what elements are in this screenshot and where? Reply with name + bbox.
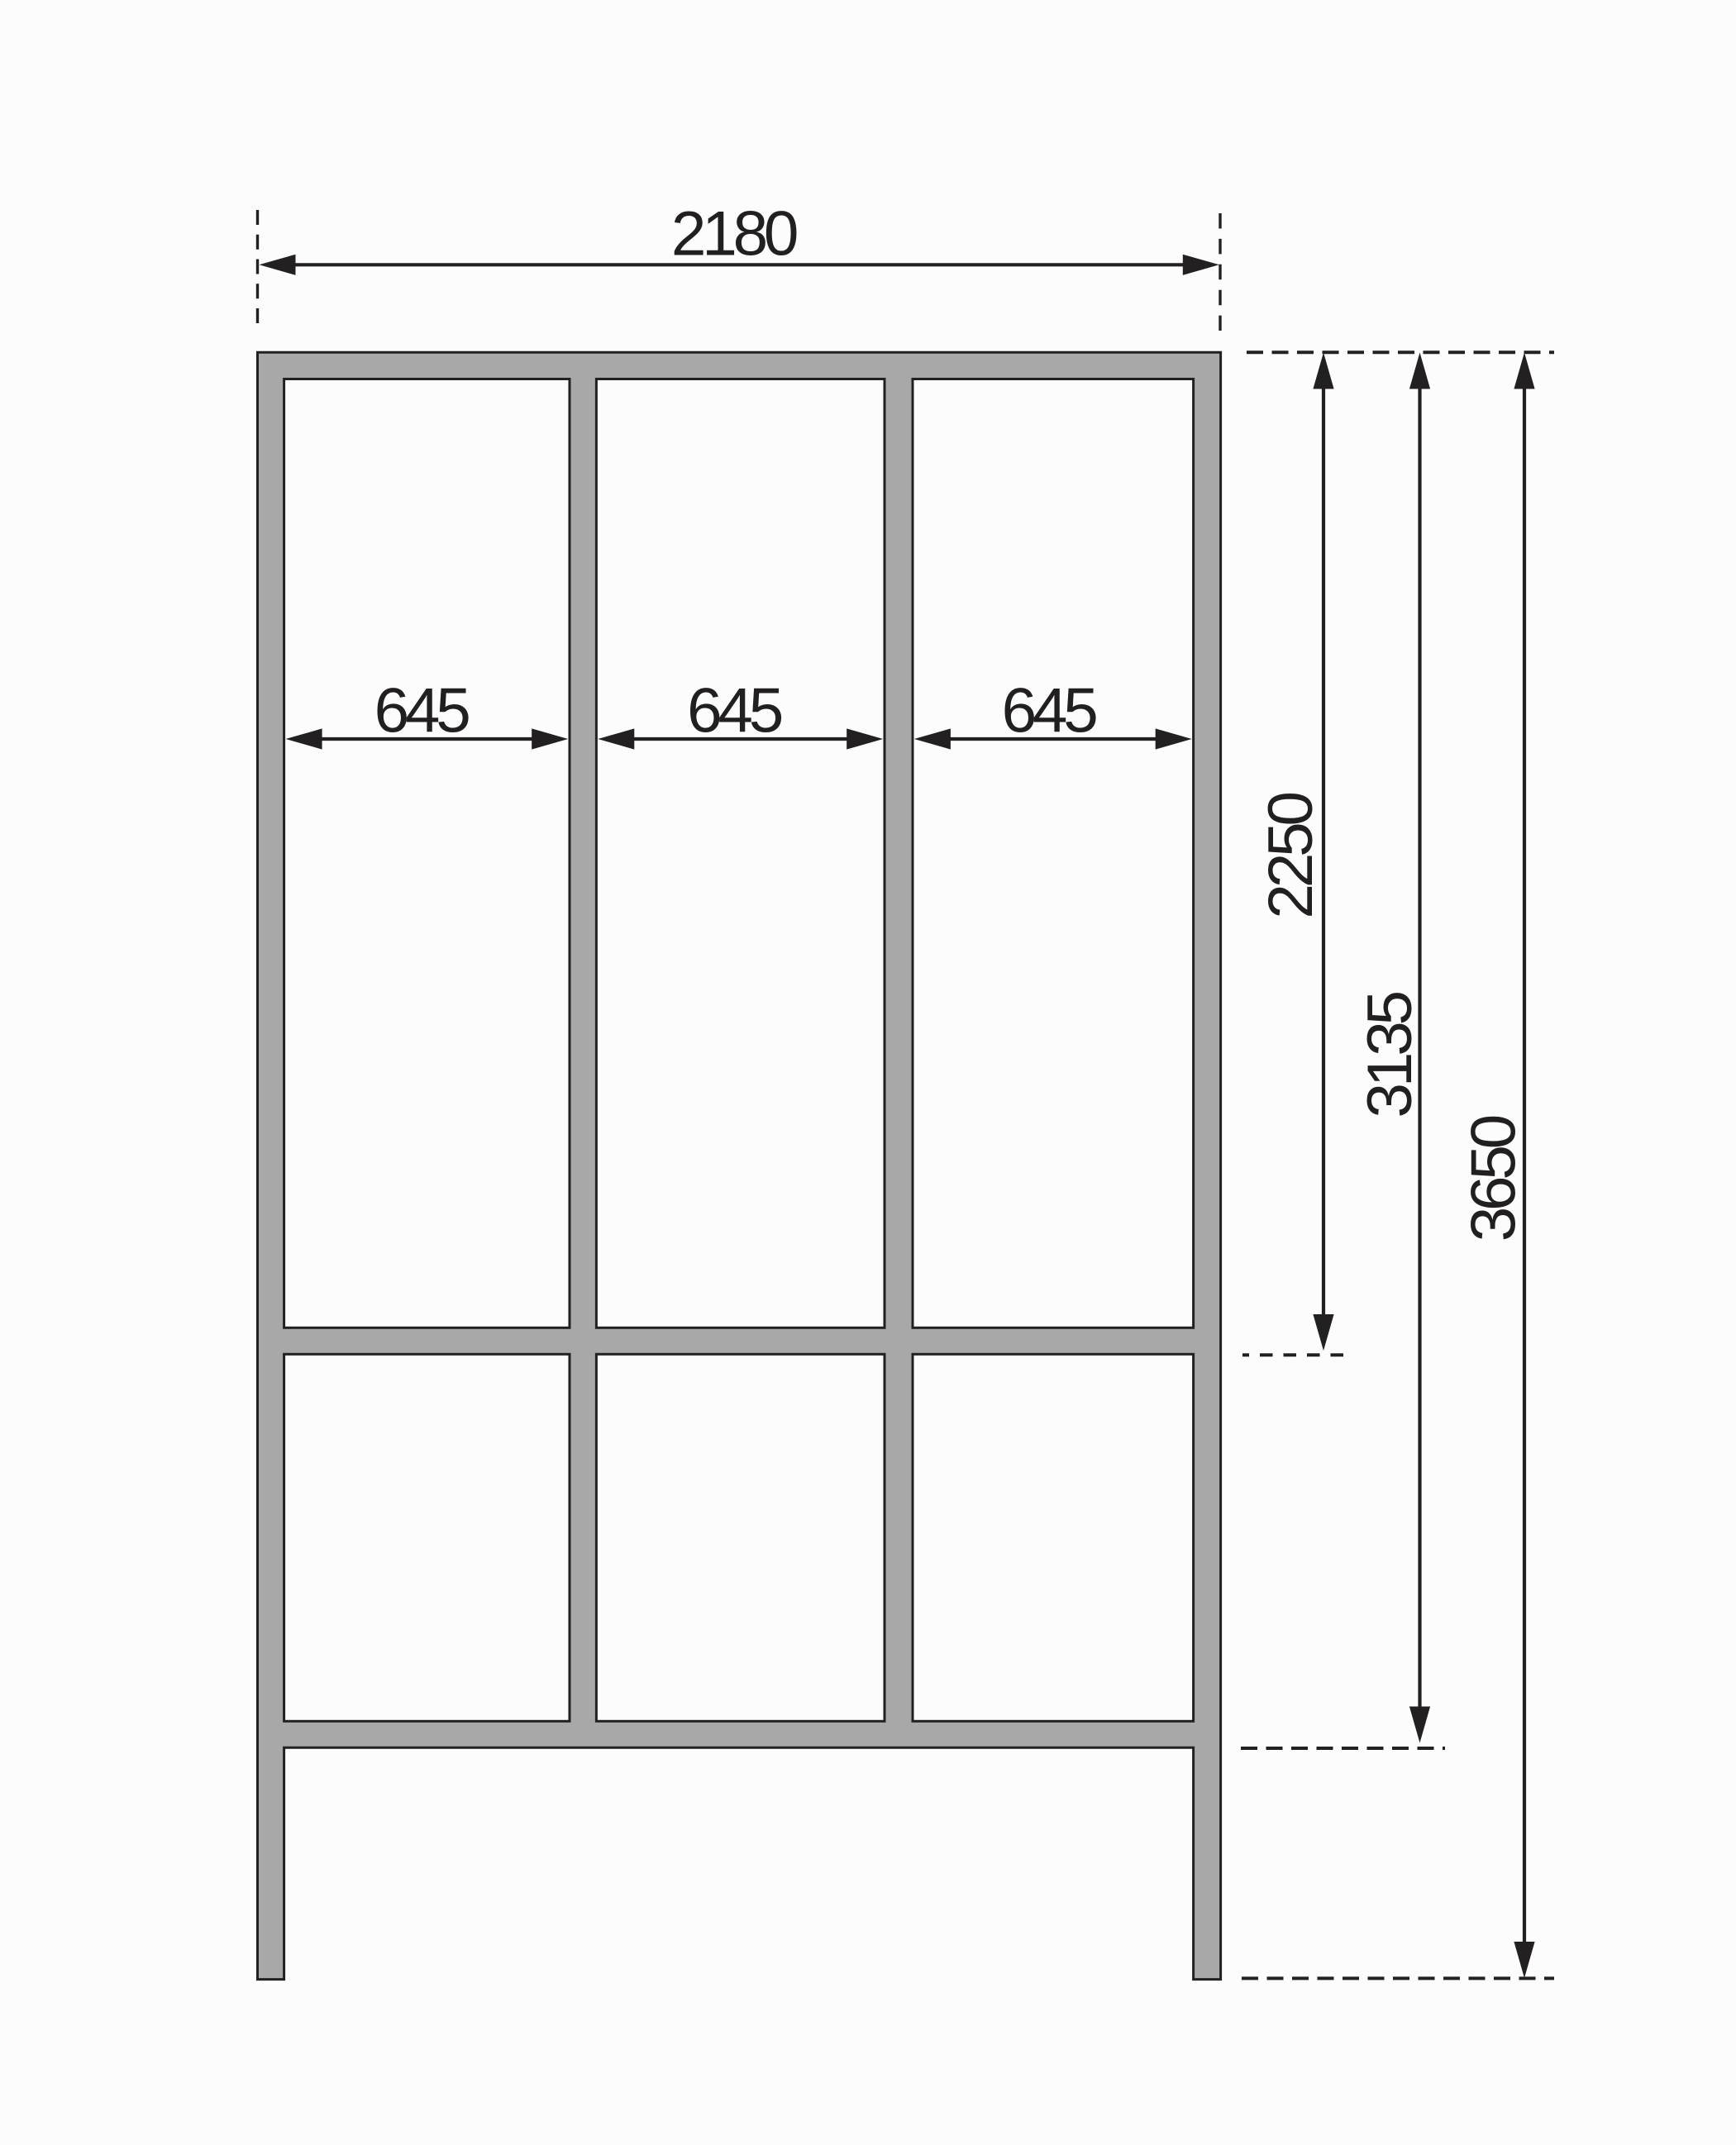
svg-text:645: 645 <box>1002 676 1097 746</box>
svg-text:645: 645 <box>374 676 470 746</box>
svg-text:3650: 3650 <box>1459 1116 1529 1242</box>
svg-text:2180: 2180 <box>671 198 797 269</box>
svg-text:645: 645 <box>687 676 782 746</box>
svg-text:2250: 2250 <box>1256 794 1326 919</box>
svg-text:3135: 3135 <box>1355 992 1425 1118</box>
